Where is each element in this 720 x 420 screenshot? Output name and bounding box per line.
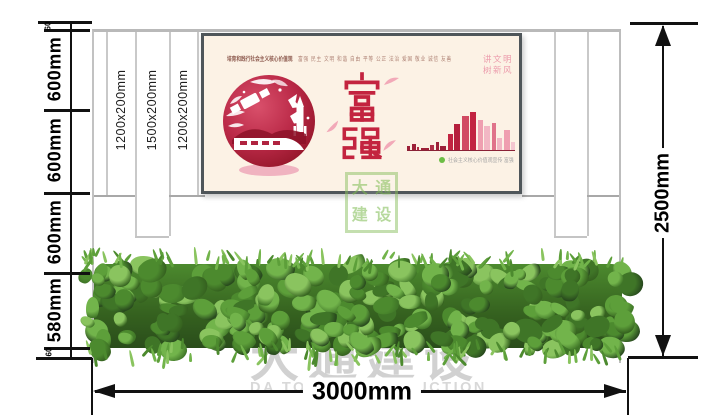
poster-slogan: 讲文明 树新风 xyxy=(483,54,513,75)
pillar-line xyxy=(554,32,556,236)
hedge-leaf xyxy=(102,251,108,263)
hedge-leaf xyxy=(389,251,396,259)
hedge-leaf xyxy=(427,352,430,361)
skyline-bar xyxy=(454,124,460,150)
skyline-bar xyxy=(511,142,515,150)
skyline-bars xyxy=(407,107,515,151)
signage-wall-drawing: 1200x200mm 1500x200mm 1200x200mm 培育和践行社会… xyxy=(0,0,720,420)
char-qiang xyxy=(340,125,384,175)
skyline-bar xyxy=(497,138,502,150)
skyline-bar xyxy=(504,130,510,150)
pillar-line xyxy=(587,32,589,236)
skyline-bar xyxy=(440,146,446,150)
dim-label-600-1: 600mm xyxy=(45,37,66,102)
pillar-line xyxy=(169,32,171,236)
dim-label-60-top: 60 xyxy=(44,22,53,31)
dim-label-60-bottom: 60 xyxy=(45,348,54,357)
watermark-logo: 大 通 建 设 xyxy=(345,172,398,233)
leaf-accent xyxy=(384,76,400,86)
slogan-line-2: 树新风 xyxy=(483,65,513,76)
dim-tick xyxy=(44,272,90,275)
hedge-leaf xyxy=(382,249,390,260)
hedge-leaf xyxy=(398,255,401,268)
pillar-bottom-line xyxy=(135,236,169,238)
hedge-leaf xyxy=(264,346,267,364)
pillar-line xyxy=(135,32,137,236)
skyline-bar xyxy=(436,142,439,150)
papercut-globe-art xyxy=(220,74,318,178)
pillar-size-label-1: 1200x200mm xyxy=(114,70,128,151)
hedge-leaf xyxy=(256,259,259,268)
poster-panel: 培育和践行社会主义核心价值观富强 民主 文明 和谐 自由 平等 公正 法治 爱国… xyxy=(201,33,522,194)
dim-label-580: 580mm xyxy=(45,278,66,343)
skyline-bar xyxy=(470,112,476,150)
hedge-leaf xyxy=(558,249,561,261)
headline-fuqiang: 富强 xyxy=(335,72,389,175)
pillar-line xyxy=(106,32,108,196)
hedge-leaf xyxy=(206,250,211,261)
char-fu xyxy=(340,72,384,122)
dim-tick xyxy=(44,192,90,195)
skyline-bar xyxy=(430,145,434,150)
hedge-leaf xyxy=(328,349,332,362)
poster-tagline: 培育和践行社会主义核心价值观富强 民主 文明 和谐 自由 平等 公正 法治 爱国… xyxy=(227,54,452,63)
dim-tick xyxy=(36,357,92,360)
wall-band-line xyxy=(94,195,135,197)
dim-label-3000: 3000mm xyxy=(303,378,421,407)
skyline-bar xyxy=(412,144,416,150)
extension-line-right xyxy=(627,358,629,415)
arrow-down-icon xyxy=(655,335,671,356)
hedge-leaf xyxy=(528,346,531,356)
arrow-up-icon xyxy=(655,25,671,46)
pillar-line xyxy=(197,32,199,196)
wall-band-line xyxy=(522,195,554,197)
logo-char: 建 xyxy=(352,208,368,224)
arrow-left-icon xyxy=(93,384,115,398)
hedge-leaf xyxy=(565,251,568,260)
hedge-plants xyxy=(86,252,630,358)
hedge-leaf xyxy=(283,253,286,269)
slogan-line-1: 讲文明 xyxy=(483,54,513,65)
skyline-bar xyxy=(478,120,483,150)
logo-char: 大 xyxy=(352,181,368,197)
caption-text: 社会主义核心价值观宣传 富强 xyxy=(448,156,514,164)
arrow-right-icon xyxy=(604,384,626,398)
skyline-bar xyxy=(421,148,429,150)
dim-label-600-3: 600mm xyxy=(45,200,66,265)
poster-caption: 社会主义核心价值观宣传 富强 xyxy=(439,156,521,164)
tagline-values: 富强 民主 文明 和谐 自由 平等 公正 法治 爱国 敬业 诚信 友善 xyxy=(298,57,452,63)
skyline-bar xyxy=(417,147,419,150)
pillar-bottom-line xyxy=(554,236,587,238)
skyline-bar xyxy=(462,116,469,150)
tagline-title: 培育和践行社会主义核心价值观 xyxy=(227,57,293,63)
dim-label-2500: 2500mm xyxy=(651,148,676,238)
logo-char: 通 xyxy=(375,181,391,197)
wall-band-line xyxy=(587,195,619,197)
pillar-size-label-2: 1500x200mm xyxy=(145,70,159,151)
hedge-leaf xyxy=(568,351,571,364)
skyline-bar xyxy=(448,134,453,150)
skyline-bar xyxy=(484,126,490,150)
logo-char: 设 xyxy=(375,208,391,224)
hedge-leaf xyxy=(189,353,192,362)
dim-label-600-2: 600mm xyxy=(45,118,66,183)
pillar-size-label-3: 1200x200mm xyxy=(176,70,190,151)
hedge-leaf xyxy=(453,343,456,360)
skyline-bar xyxy=(407,146,410,150)
hedge-leaf xyxy=(509,259,513,277)
left-dim-line xyxy=(70,22,72,358)
green-dot-icon xyxy=(439,157,445,163)
wall-band-line xyxy=(169,195,205,197)
dim-tick xyxy=(44,109,90,112)
hedge-leaf xyxy=(590,345,593,361)
hedge-leaf xyxy=(165,350,168,364)
skyline-bar xyxy=(492,123,496,150)
hedge-leaf xyxy=(306,341,309,350)
